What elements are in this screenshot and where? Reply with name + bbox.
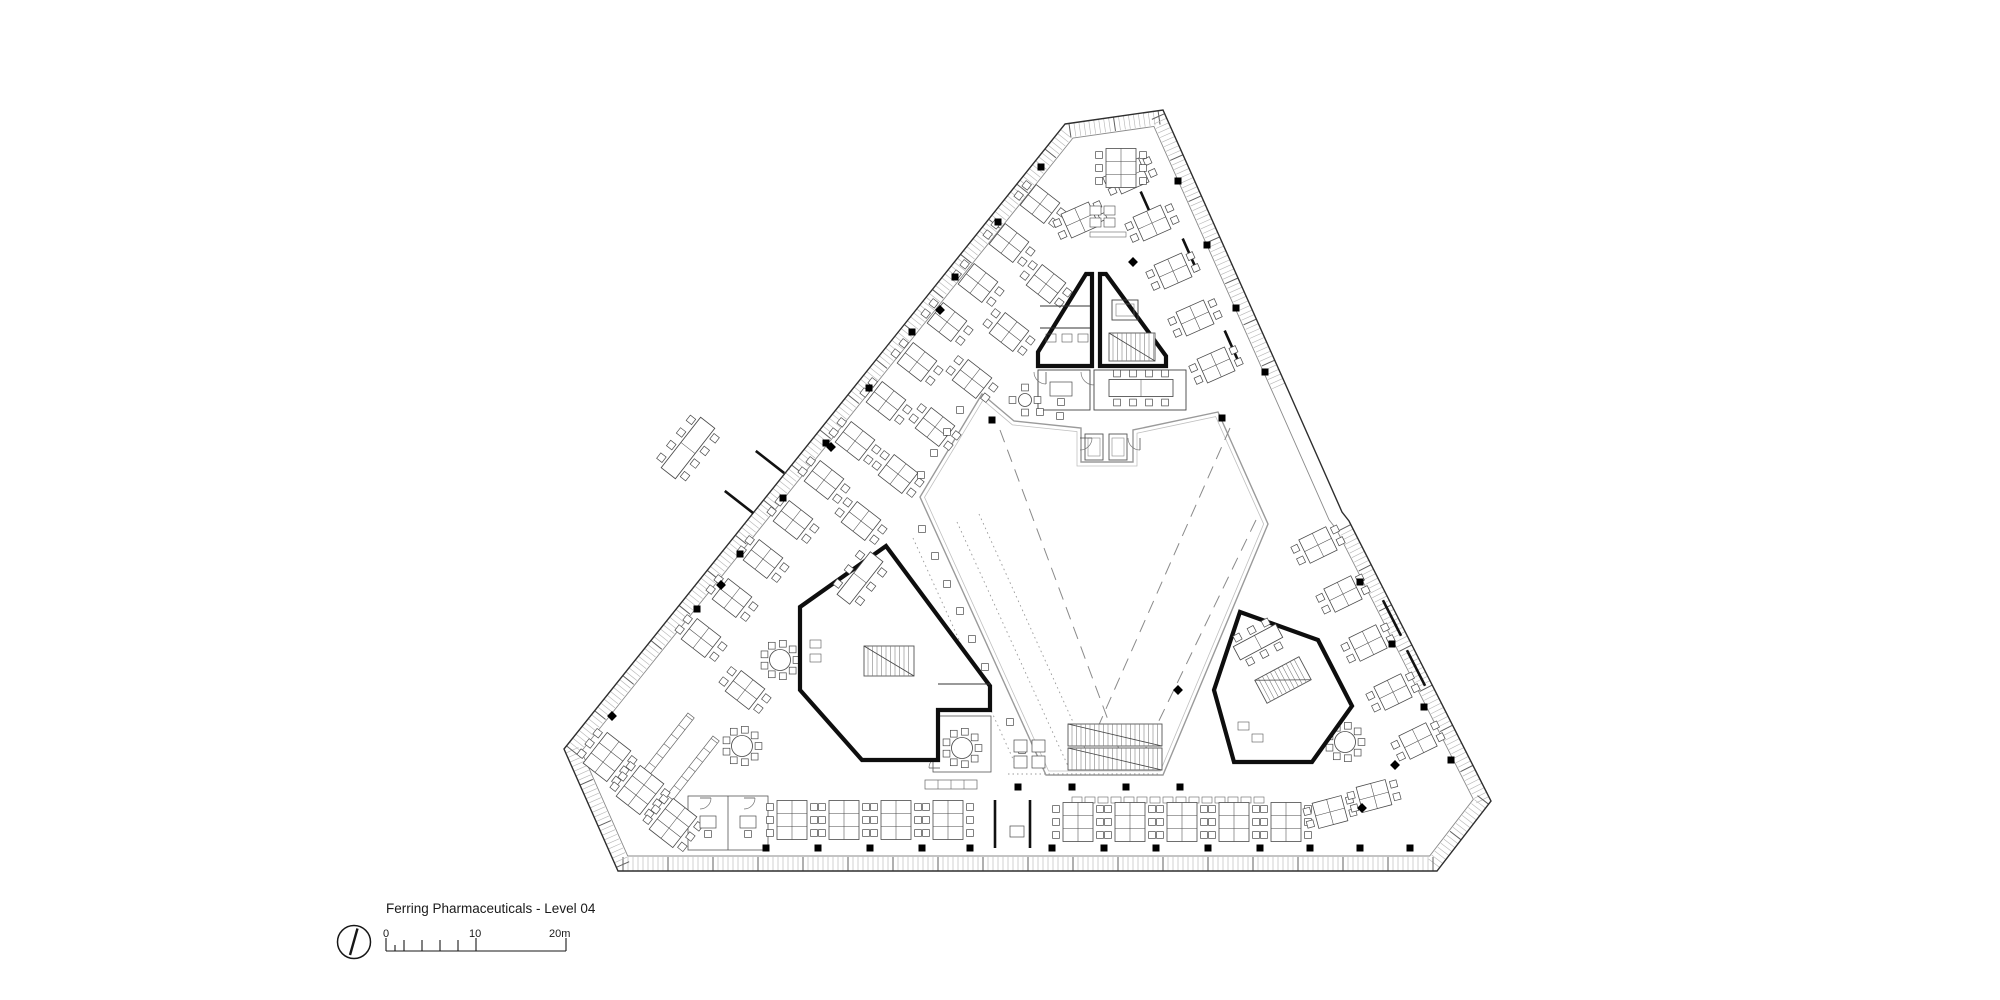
scale-label-0: 0 — [383, 928, 389, 940]
plan-title: Ferring Pharmaceuticals - Level 04 — [386, 901, 596, 916]
drawing-sheet: Ferring Pharmaceuticals - Level 04 0 10 … — [0, 0, 2000, 1000]
scale-label-20: 20m — [549, 928, 570, 940]
title-block: Ferring Pharmaceuticals - Level 04 0 10 … — [338, 901, 596, 959]
north-arrow-icon — [338, 926, 371, 959]
floor-plan: Ferring Pharmaceuticals - Level 04 0 10 … — [0, 0, 2000, 1000]
scale-label-10: 10 — [469, 928, 481, 940]
meeting-table — [654, 411, 722, 484]
